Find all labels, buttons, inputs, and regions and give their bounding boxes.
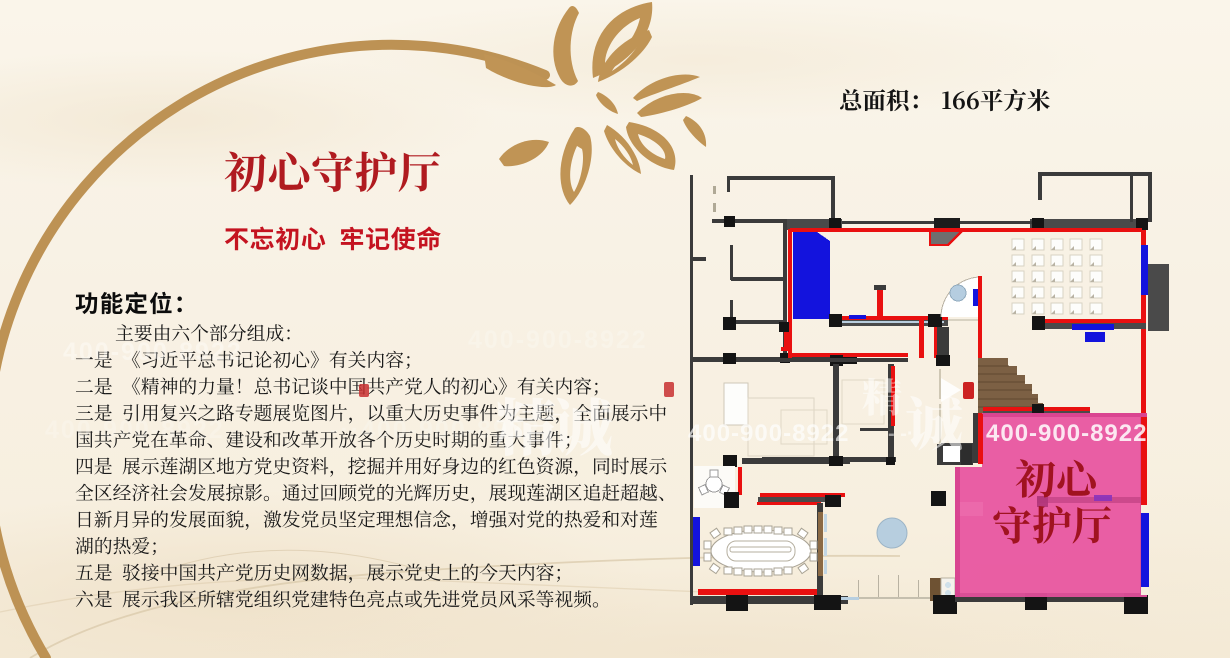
- svg-text:400-900-8922: 400-900-8922: [688, 420, 849, 447]
- svg-text:400-900-8922: 400-900-8922: [986, 420, 1147, 447]
- svg-text:400-900-8922: 400-900-8922: [468, 326, 648, 354]
- svg-text:400-900-8922: 400-900-8922: [45, 416, 225, 444]
- svg-text:- -·: - -·: [888, 423, 914, 445]
- svg-text:400-900-8922: 400-900-8922: [63, 338, 243, 366]
